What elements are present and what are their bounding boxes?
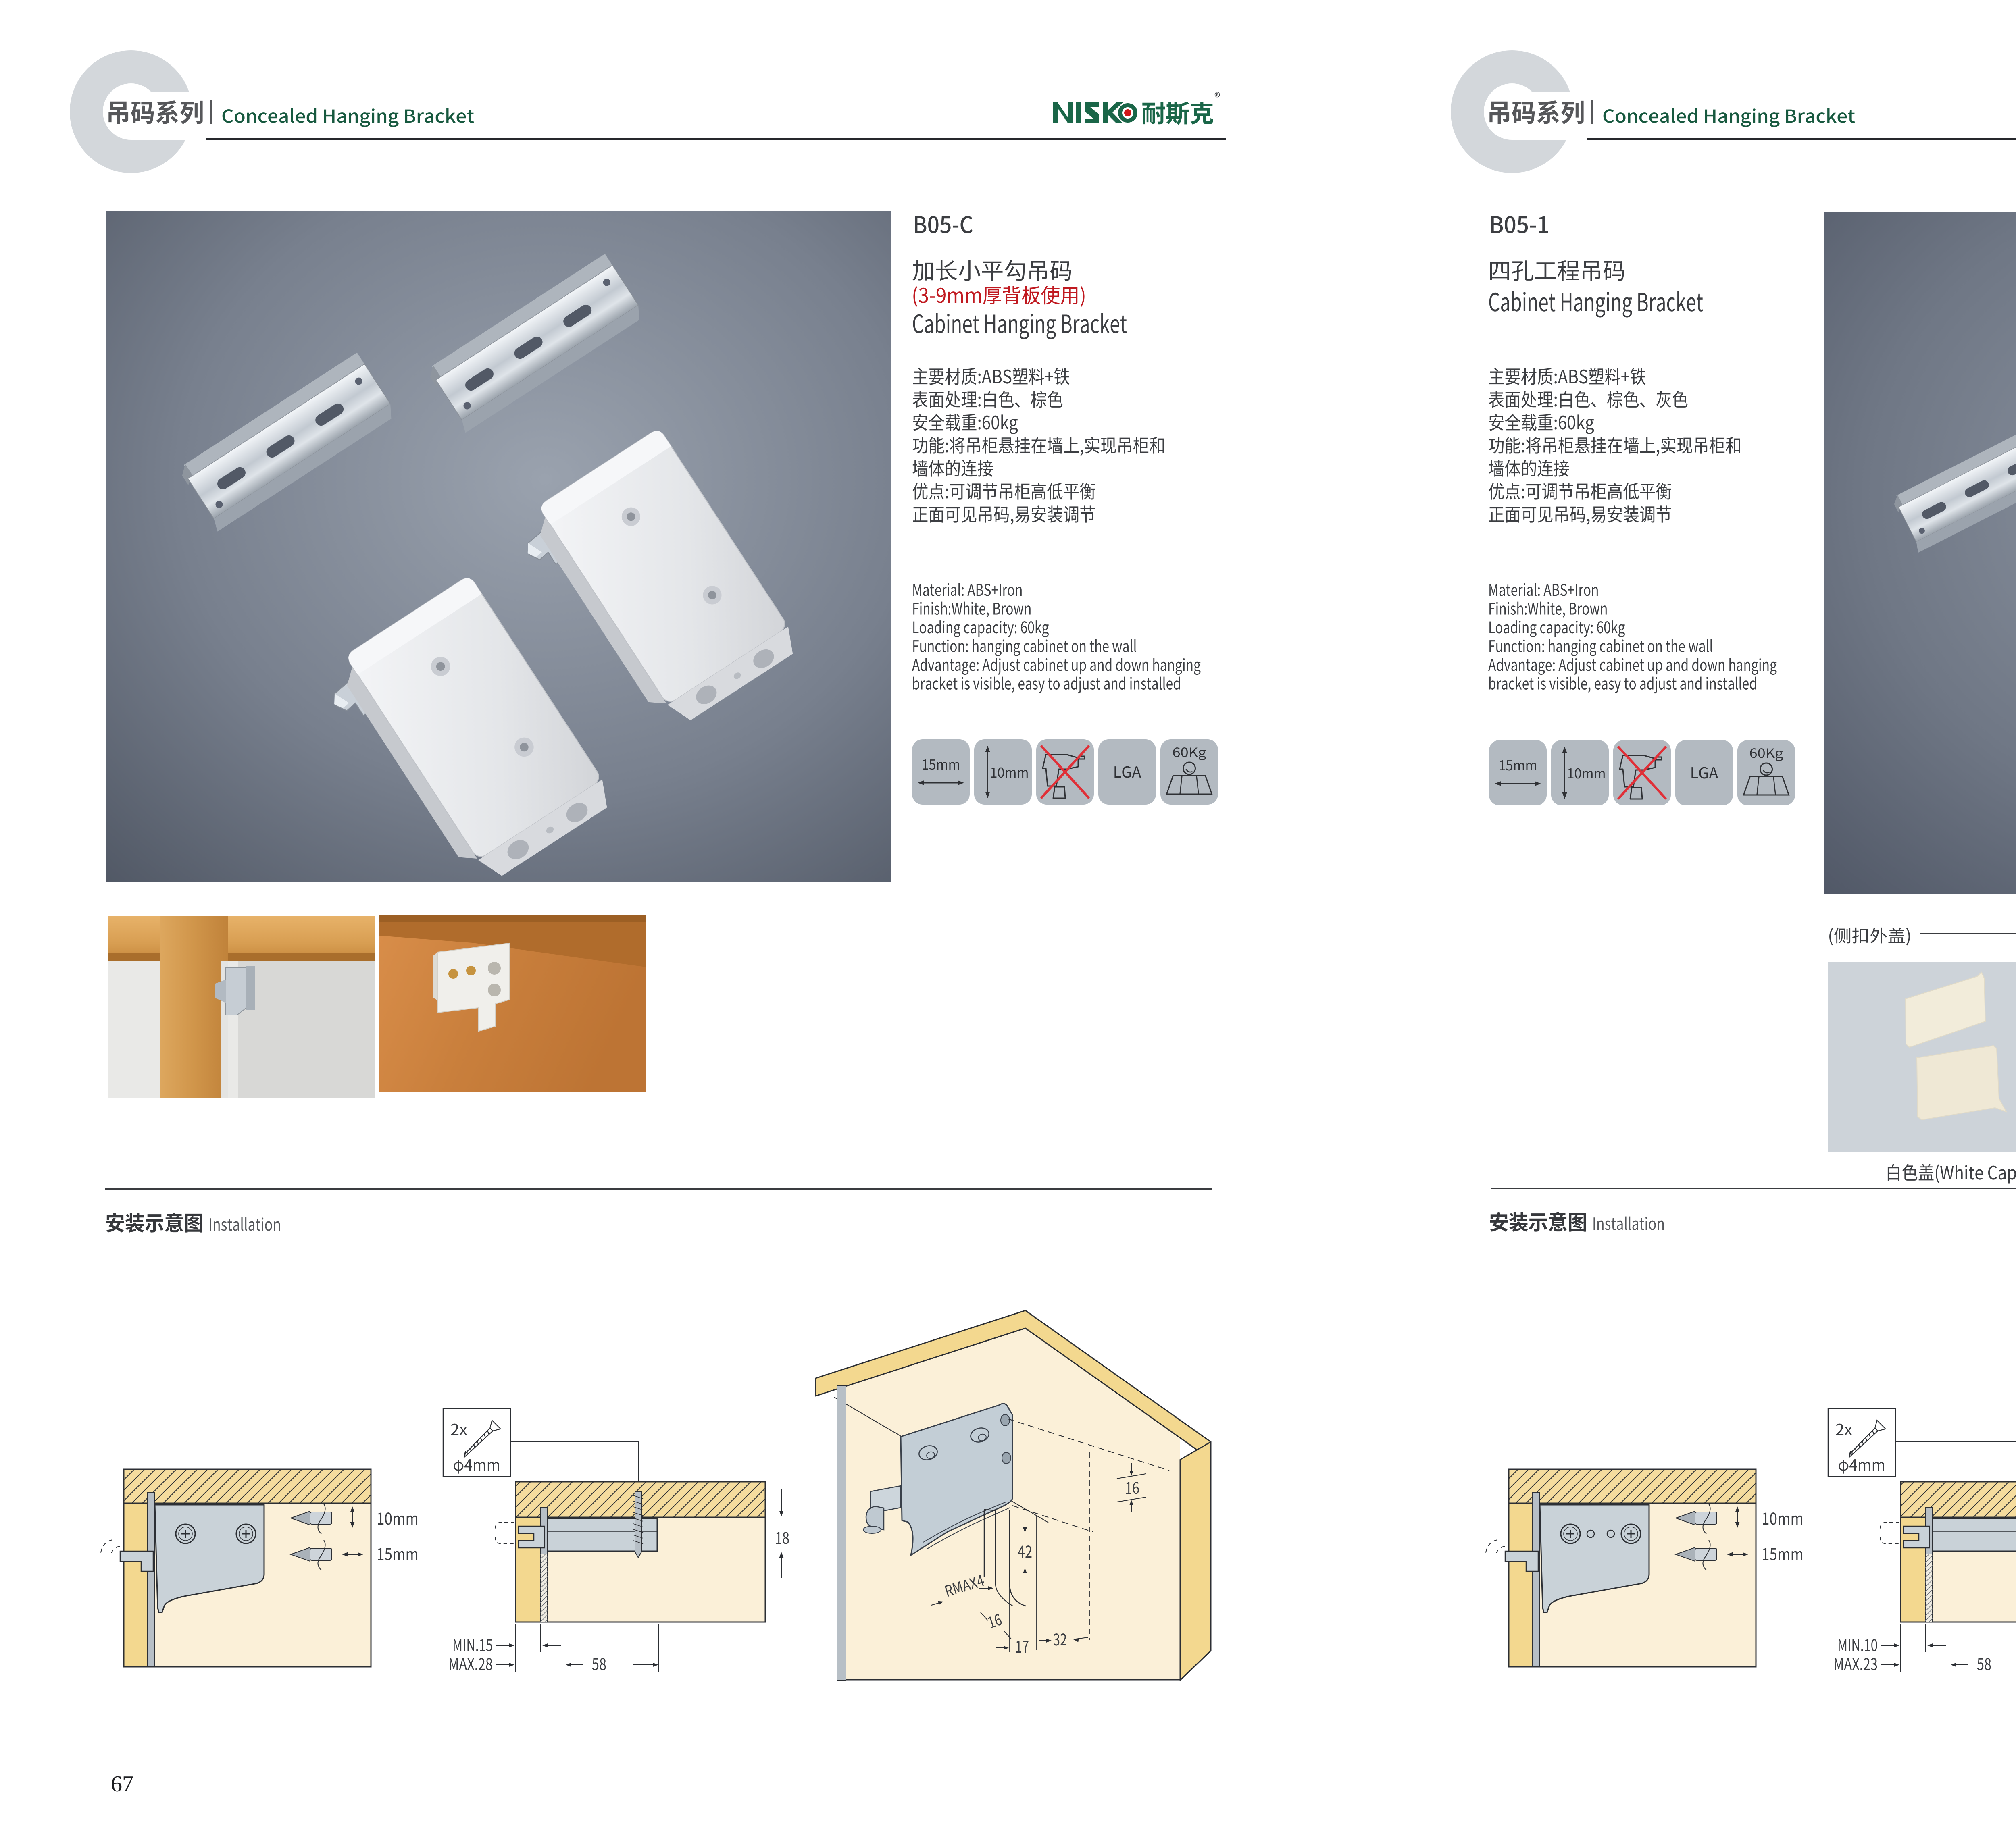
svg-text:67: 67: [111, 1772, 133, 1797]
